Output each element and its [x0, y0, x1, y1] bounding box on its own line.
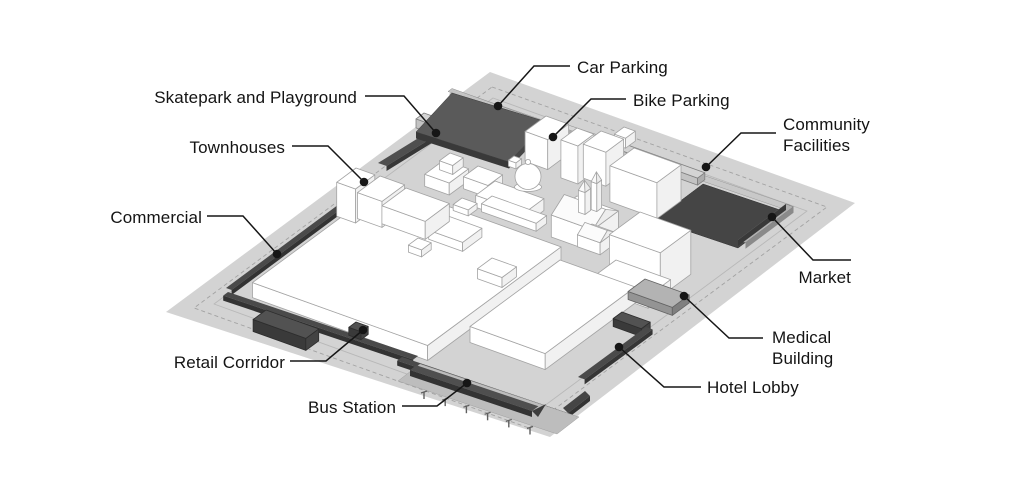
label-hotel-text: Hotel Lobby	[707, 378, 799, 397]
label-market-text: Market	[798, 268, 851, 287]
label-medical-text: Medical Building	[772, 328, 833, 368]
retail-corridor-anchor-dot	[359, 326, 368, 335]
bike-parking-building-2-sw-face	[561, 140, 578, 184]
hotel-lobby-anchor-dot	[615, 343, 624, 352]
label-commercial-text: Commercial	[110, 208, 202, 227]
car-parking-anchor-dot	[494, 102, 503, 111]
bike-parking-anchor-dot	[549, 133, 558, 142]
townhouses-anchor-dot	[360, 178, 369, 187]
label-bike-parking: Bike Parking	[633, 90, 730, 111]
label-skatepark-playground: Skatepark and Playground	[154, 87, 357, 108]
isometric-model-svg	[0, 0, 1020, 500]
label-hotel-lobby: Hotel Lobby	[707, 377, 799, 398]
label-market: Market	[798, 267, 851, 288]
spire-1-sw-face	[578, 190, 585, 214]
label-car-parking-text: Car Parking	[577, 58, 668, 77]
label-retail-text: Retail Corridor	[174, 353, 285, 372]
label-community-text: Community Facilities	[783, 115, 870, 155]
community-facilities-anchor-dot	[702, 163, 711, 172]
label-townhouses-text: Townhouses	[189, 138, 285, 157]
label-community-facilities: Community Facilities	[783, 114, 888, 156]
market-anchor-dot	[768, 213, 777, 222]
label-bike-parking-text: Bike Parking	[633, 91, 730, 110]
medical-building-anchor-dot	[680, 292, 689, 301]
skatepark-anchor-dot	[432, 129, 441, 138]
label-townhouses: Townhouses	[189, 137, 285, 158]
label-medical-building: Medical Building	[772, 327, 854, 369]
label-bus-text: Bus Station	[308, 398, 396, 417]
spire-2-se-face	[597, 180, 602, 212]
spire-2-sw-face	[591, 182, 597, 212]
site-plan-figure: Car Parking Bike Parking Skatepark and P…	[0, 0, 1020, 500]
bus-station-anchor-dot	[463, 379, 472, 388]
label-commercial: Commercial	[110, 207, 202, 228]
label-car-parking: Car Parking	[577, 57, 668, 78]
label-retail-corridor: Retail Corridor	[174, 352, 285, 373]
dome-knob	[525, 159, 530, 164]
label-skatepark-text: Skatepark and Playground	[154, 88, 357, 107]
dome	[515, 164, 541, 190]
commercial-anchor-dot	[273, 250, 282, 259]
label-bus-station: Bus Station	[308, 397, 396, 418]
